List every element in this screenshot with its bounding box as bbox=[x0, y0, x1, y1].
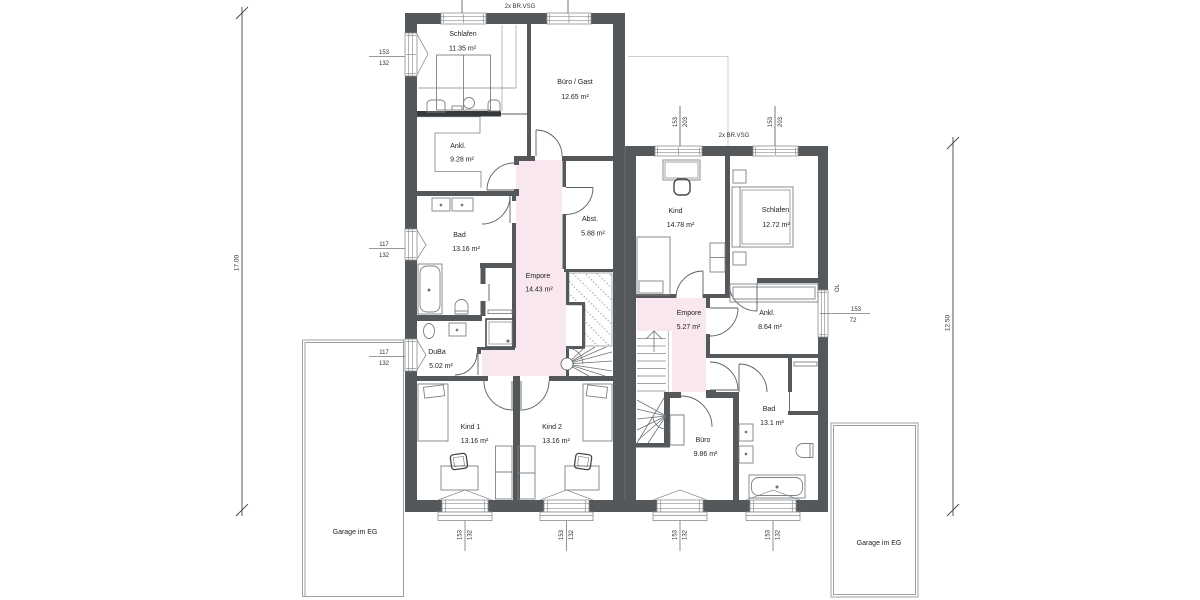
svg-text:12.65 m²: 12.65 m² bbox=[561, 94, 589, 101]
svg-text:72: 72 bbox=[850, 318, 857, 324]
svg-text:Bad: Bad bbox=[763, 406, 776, 413]
svg-text:11.35 m²: 11.35 m² bbox=[449, 46, 477, 53]
svg-text:153: 153 bbox=[559, 529, 565, 540]
svg-text:Schlafen: Schlafen bbox=[762, 207, 789, 214]
svg-text:Bad: Bad bbox=[453, 232, 466, 239]
svg-text:203: 203 bbox=[683, 116, 689, 127]
svg-text:8.64 m²: 8.64 m² bbox=[758, 324, 782, 331]
svg-text:Kind 1: Kind 1 bbox=[461, 424, 481, 431]
svg-text:153: 153 bbox=[673, 116, 679, 127]
svg-text:Abst.: Abst. bbox=[582, 216, 598, 223]
svg-text:203: 203 bbox=[778, 116, 784, 127]
svg-text:14.43 m²: 14.43 m² bbox=[525, 287, 553, 294]
svg-text:153: 153 bbox=[458, 529, 464, 540]
svg-text:9.28 m²: 9.28 m² bbox=[450, 157, 474, 164]
svg-text:2x BR.VSG: 2x BR.VSG bbox=[719, 133, 750, 139]
svg-text:OL: OL bbox=[835, 283, 841, 292]
svg-text:Büro: Büro bbox=[696, 437, 711, 444]
svg-text:132: 132 bbox=[683, 529, 689, 540]
svg-text:DuBa: DuBa bbox=[428, 349, 446, 356]
svg-text:2x BR.VSG: 2x BR.VSG bbox=[505, 4, 536, 10]
svg-text:Empore: Empore bbox=[677, 310, 702, 317]
svg-text:14.78 m²: 14.78 m² bbox=[667, 222, 695, 229]
svg-text:132: 132 bbox=[776, 529, 782, 540]
svg-text:Garage im EG: Garage im EG bbox=[857, 540, 902, 547]
svg-text:153: 153 bbox=[851, 307, 862, 313]
svg-text:132: 132 bbox=[379, 253, 390, 259]
svg-text:132: 132 bbox=[379, 361, 390, 367]
svg-text:Garage im EG: Garage im EG bbox=[333, 529, 378, 536]
svg-text:Büro / Gast: Büro / Gast bbox=[557, 79, 592, 86]
svg-text:13.1 m²: 13.1 m² bbox=[760, 420, 784, 427]
svg-text:117: 117 bbox=[379, 350, 389, 356]
svg-text:132: 132 bbox=[468, 529, 474, 540]
svg-text:Kind 2: Kind 2 bbox=[542, 424, 562, 431]
svg-text:Schlafen: Schlafen bbox=[449, 31, 476, 38]
svg-text:13.16 m²: 13.16 m² bbox=[542, 438, 570, 445]
svg-text:Kind: Kind bbox=[668, 208, 682, 215]
svg-text:13.16 m²: 13.16 m² bbox=[461, 438, 489, 445]
svg-text:132: 132 bbox=[379, 61, 390, 67]
svg-text:153: 153 bbox=[379, 50, 390, 56]
svg-text:12.72 m²: 12.72 m² bbox=[762, 222, 790, 229]
svg-text:5.88 m²: 5.88 m² bbox=[581, 231, 605, 238]
svg-text:5.27 m²: 5.27 m² bbox=[677, 324, 701, 331]
svg-text:117: 117 bbox=[379, 242, 389, 248]
svg-text:153: 153 bbox=[766, 529, 772, 540]
svg-text:17.00: 17.00 bbox=[234, 254, 241, 271]
svg-text:Ankl.: Ankl. bbox=[450, 143, 466, 150]
svg-text:Empore: Empore bbox=[526, 273, 551, 280]
svg-text:5.02 m²: 5.02 m² bbox=[429, 363, 453, 370]
svg-text:153: 153 bbox=[673, 529, 679, 540]
svg-text:12.50: 12.50 bbox=[945, 314, 952, 331]
svg-text:9.86 m²: 9.86 m² bbox=[694, 451, 718, 458]
svg-text:132: 132 bbox=[569, 529, 575, 540]
svg-text:153: 153 bbox=[768, 116, 774, 127]
svg-text:13.16 m²: 13.16 m² bbox=[452, 246, 480, 253]
svg-text:Ankl.: Ankl. bbox=[759, 310, 775, 317]
